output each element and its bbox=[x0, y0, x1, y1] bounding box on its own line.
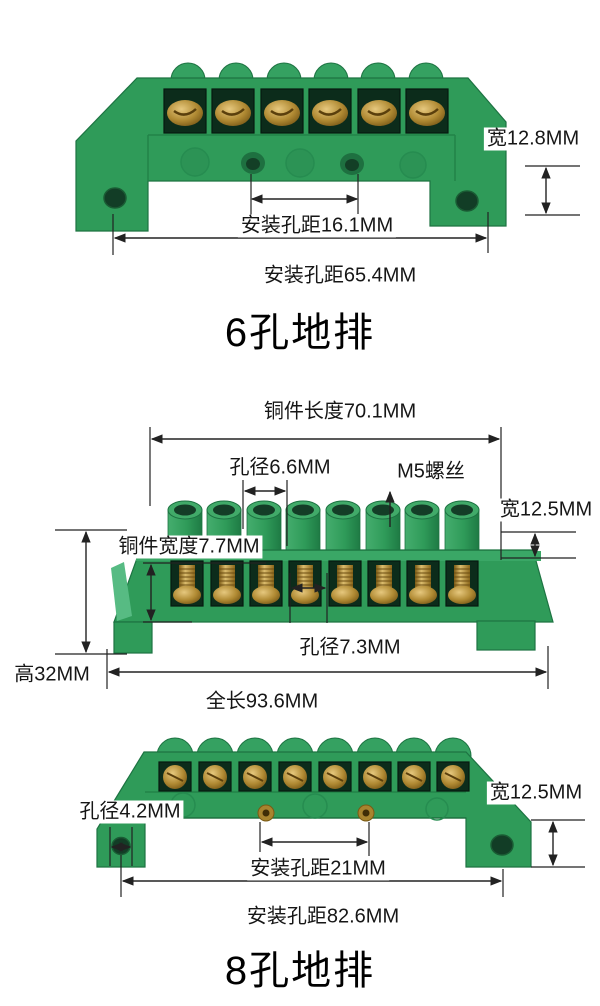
height-label: 高32MM bbox=[11, 664, 93, 687]
screw-type-label: M5螺丝 bbox=[394, 461, 468, 484]
mount-spacing-inner-label-6hole: 安装孔距16.1MM bbox=[238, 215, 396, 238]
mount-spacing-inner-label-8hole: 安装孔距21MM bbox=[247, 858, 389, 881]
width-label-8hole-front: 宽12.5MM bbox=[487, 782, 585, 805]
product-dimension-diagram: 宽12.8MM 安装孔距16.1MM 安装孔距65.4MM 6孔地排 铜件长度7… bbox=[0, 0, 600, 1006]
six-hole-block-illustration bbox=[76, 63, 506, 231]
foot-hole-diameter-label: 孔径4.2MM bbox=[76, 801, 183, 824]
eight-hole-title: 8孔地排 bbox=[225, 938, 375, 996]
front-hole-diameter-label: 孔径7.3MM bbox=[296, 637, 403, 660]
top-hole-diameter-label: 孔径6.6MM bbox=[226, 457, 333, 480]
copper-length-label: 铜件长度70.1MM bbox=[261, 401, 419, 424]
six-hole-title: 6孔地排 bbox=[225, 300, 375, 358]
width-label-6hole: 宽12.8MM bbox=[484, 128, 582, 151]
mount-spacing-outer-label-8hole: 安装孔距82.6MM bbox=[244, 906, 402, 929]
mount-spacing-outer-label-6hole: 安装孔距65.4MM bbox=[261, 265, 419, 288]
copper-width-label: 铜件宽度7.7MM bbox=[115, 536, 262, 559]
width-label-8hole-top: 宽12.5MM bbox=[497, 499, 595, 522]
total-length-label: 全长93.6MM bbox=[203, 691, 321, 714]
eight-hole-top-view-illustration bbox=[111, 501, 553, 653]
